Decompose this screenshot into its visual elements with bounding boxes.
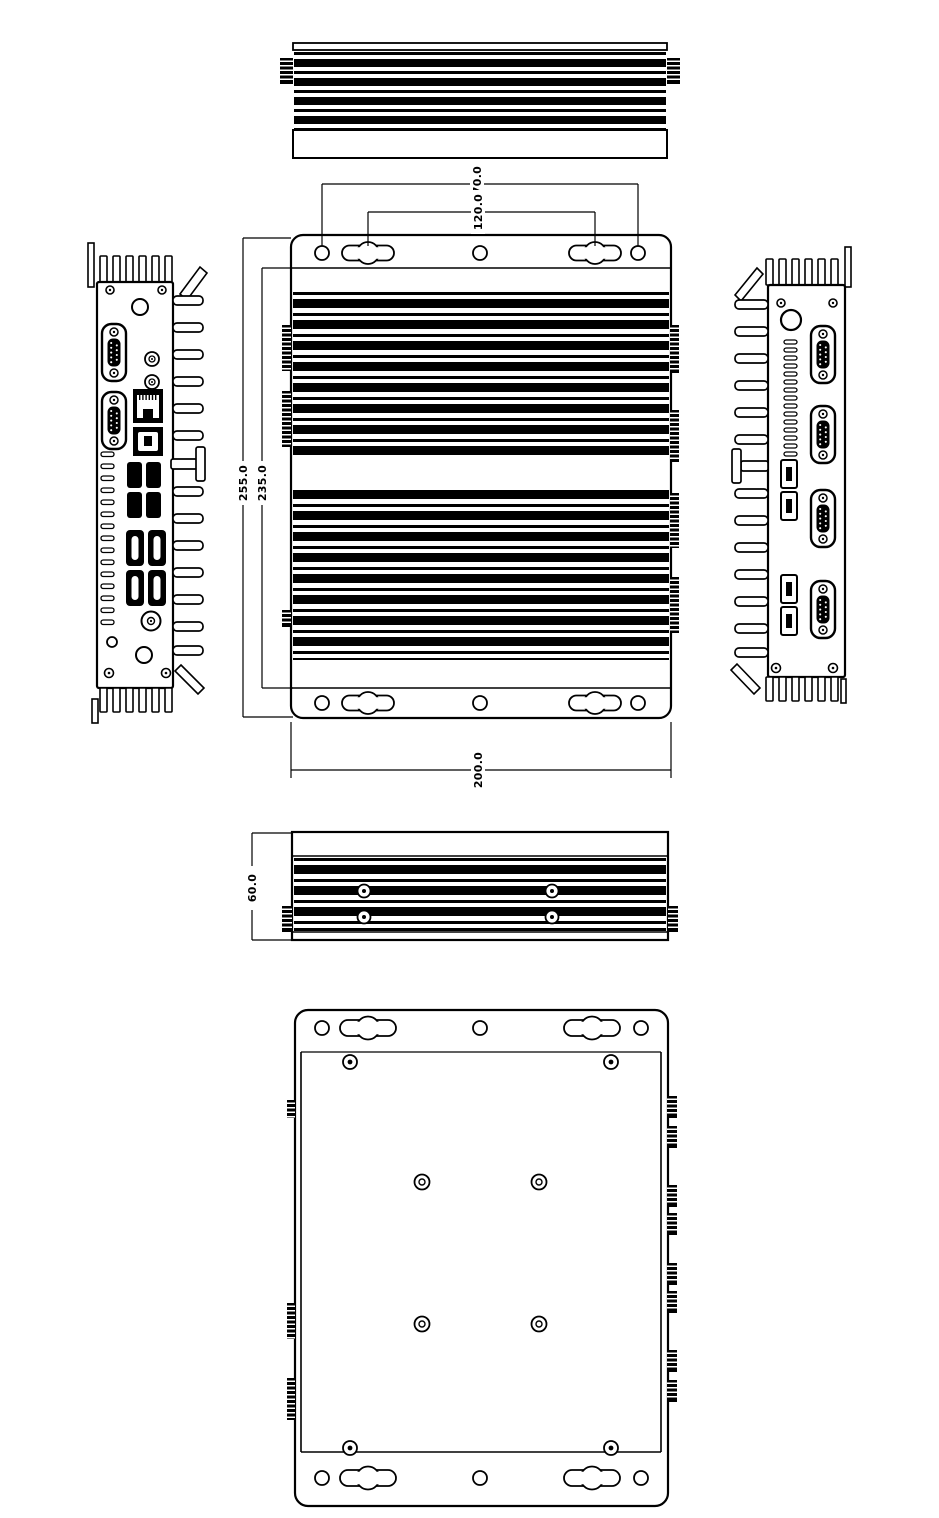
db9-pin [110, 415, 112, 417]
db9-pin [819, 604, 821, 606]
db9-pin [825, 606, 827, 608]
db9-pin [825, 520, 827, 522]
fin-tooth [818, 677, 825, 701]
heatsink-fin [294, 90, 666, 93]
mechanical-dimension-drawing: 170.0 120.0 255.0 235.0 200.0 60.0 [0, 0, 939, 1518]
center-dot [822, 629, 824, 631]
fin-tooth [766, 259, 773, 285]
heatsink-fin [294, 71, 666, 74]
fin-tooth [173, 404, 203, 413]
chassis-band [293, 130, 667, 158]
db9-pin [110, 420, 112, 422]
db9-pin-field [817, 421, 830, 449]
top-view [282, 235, 679, 718]
db9-pin-field [817, 596, 830, 624]
vent-slot [784, 380, 797, 384]
db9-pin [116, 359, 118, 361]
heatsink-fin [293, 574, 669, 583]
center-dot [113, 440, 115, 442]
top-cap [293, 43, 667, 50]
heatsink-fin [293, 418, 669, 421]
ethernet-latch [143, 409, 153, 418]
fin-tooth [173, 541, 203, 550]
fin-tooth [735, 597, 768, 606]
center-dot [113, 331, 115, 333]
vent-slot [784, 452, 797, 456]
db9-pin [819, 527, 821, 529]
heatsink-fin [293, 397, 669, 400]
heatsink-fin [293, 553, 669, 562]
mounting-hole [315, 696, 329, 710]
vent-slot [784, 364, 797, 368]
db9-pin [819, 424, 821, 426]
vent-slot [784, 412, 797, 416]
vent-slot [101, 584, 114, 589]
corner-fin [735, 268, 763, 301]
fin-tooth [171, 459, 197, 469]
vent-slot [101, 548, 114, 553]
heatsink-fin [293, 504, 669, 507]
ethernet-pin [145, 395, 146, 400]
center-dot [165, 672, 168, 675]
heatsink-fin [293, 446, 669, 455]
fin-tooth [100, 688, 107, 712]
fin-tooth [173, 377, 203, 386]
heatsink-fin [293, 567, 669, 570]
hdmi-slot [154, 576, 161, 600]
heatsink-fin [293, 404, 669, 413]
mounting-hole [473, 1021, 487, 1035]
db9-pin [819, 434, 821, 436]
dim-label-body-height: 235.0 [256, 465, 269, 501]
db9-pin [819, 613, 821, 615]
center-dot [113, 372, 115, 374]
db9-pin [825, 525, 827, 527]
mount-bracket-edge [841, 679, 846, 703]
heatsink-fin [293, 511, 669, 520]
center-dot [150, 620, 152, 622]
center-dot [109, 289, 111, 291]
rear-io-panel-view [731, 247, 851, 703]
fin-tooth [779, 259, 786, 285]
heatsink-fin [293, 299, 669, 308]
vent-slot [101, 464, 114, 469]
vent-slot [101, 476, 114, 481]
mount-bracket-edge [92, 699, 98, 723]
db9-pin [825, 346, 827, 348]
db9-pin [819, 508, 821, 510]
vent-slot [784, 340, 797, 344]
heatsink-fin [294, 109, 666, 112]
ethernet-pin [142, 395, 143, 400]
fin-tooth [735, 300, 768, 309]
vent-slot [784, 348, 797, 352]
fin-tooth [735, 327, 768, 336]
usb-port [146, 462, 161, 488]
heatsink-fin [293, 376, 669, 379]
fin-tooth [735, 489, 768, 498]
fin-tooth [735, 435, 768, 444]
vent-slot [101, 536, 114, 541]
reset-hole [107, 637, 117, 647]
vent-slot [784, 388, 797, 392]
center-dot [609, 1446, 614, 1451]
usb-port [127, 492, 142, 518]
hdmi-slot [132, 536, 139, 560]
db9-pin [819, 363, 821, 365]
circle-hole [419, 1321, 425, 1327]
fin-tooth [792, 259, 799, 285]
fin-tooth [792, 677, 799, 701]
heatsink-fin [294, 865, 666, 874]
heatsink-fin [293, 313, 669, 316]
usb-tongue [786, 582, 792, 596]
circle-hole [419, 1179, 425, 1185]
db9-pin [825, 361, 827, 363]
hdmi-slot [132, 576, 139, 600]
db9-pin [110, 429, 112, 431]
mount-bracket-edge [88, 243, 94, 287]
dim-label-overall-width: 200.0 [472, 752, 485, 788]
db9-pin [110, 361, 112, 363]
dim-label-mount-slot-span: 120.0 [472, 194, 485, 230]
center-dot [780, 302, 782, 304]
center-dot [822, 588, 824, 590]
db9-pin [819, 599, 821, 601]
vent-slot [101, 572, 114, 577]
db9-pin [110, 424, 112, 426]
fin-tooth [735, 648, 768, 657]
dim-label-chassis-thickness: 60.0 [246, 874, 259, 902]
bottom-view [287, 1010, 677, 1506]
db9-pin [819, 522, 821, 524]
mounting-hole [634, 1021, 648, 1035]
heatsink-fin [294, 858, 666, 861]
fin-tooth [735, 381, 768, 390]
heatsink-fin [293, 588, 669, 591]
drawing-page: 170.0 120.0 255.0 235.0 200.0 60.0 [0, 0, 939, 1518]
fin-tooth [173, 350, 203, 359]
heatsink-fin [293, 425, 669, 434]
heatsink-fin [294, 116, 666, 124]
vent-slot [101, 512, 114, 517]
heatsink-fin [294, 928, 666, 931]
fin-tooth [735, 354, 768, 363]
fin-tooth [735, 624, 768, 633]
antenna-hole [781, 310, 801, 330]
center-dot [108, 672, 111, 675]
bottom-side-view [282, 832, 678, 940]
vent-slot [784, 420, 797, 424]
center-dot [822, 413, 824, 415]
vent-slot [784, 404, 797, 408]
heatsink-fin [293, 362, 669, 371]
db9-pin [110, 356, 112, 358]
heatsink-fin [293, 616, 669, 625]
usb-port [146, 492, 161, 518]
db9-pin [825, 515, 827, 517]
heatsink-fin [293, 532, 669, 541]
center-dot [832, 302, 834, 304]
heatsink-fin [293, 383, 669, 392]
fin-tooth [779, 677, 786, 701]
vent-slot [784, 436, 797, 440]
db9-pin [819, 513, 821, 515]
fin-tooth [152, 256, 159, 282]
vent-slot [101, 488, 114, 493]
heatsink-fin [293, 292, 669, 295]
center-dot [151, 358, 153, 360]
center-dot [113, 399, 115, 401]
fin-tooth [831, 259, 838, 285]
heatsink-fin [294, 900, 666, 903]
fin-tooth [173, 296, 203, 305]
heatsink-fin [294, 886, 666, 895]
db9-pin [825, 441, 827, 443]
mounting-hole [631, 696, 645, 710]
db9-pin [825, 510, 827, 512]
center-dot [822, 374, 824, 376]
corner-fin [175, 665, 204, 694]
fin-tooth [113, 256, 120, 282]
db9-pin [825, 616, 827, 618]
fin-tooth [196, 447, 205, 481]
antenna-hole [132, 299, 148, 315]
heatsink-fin [294, 921, 666, 924]
heatsink-fin [293, 658, 669, 660]
mounting-hole [634, 1471, 648, 1485]
vent-slot [784, 444, 797, 448]
hdmi-slot [154, 536, 161, 560]
db9-pin [116, 427, 118, 429]
db9-pin [819, 618, 821, 620]
mounting-hole [473, 1471, 487, 1485]
ethernet-pin [155, 395, 156, 400]
power-button [136, 647, 152, 663]
ethernet-latch [144, 436, 152, 446]
fin-tooth [741, 461, 768, 471]
corner-fin [180, 267, 207, 300]
usb-tongue [786, 499, 792, 513]
heatsink-fin [293, 334, 669, 337]
fin-tooth [735, 543, 768, 552]
db9-pin [825, 356, 827, 358]
db9-pin [110, 410, 112, 412]
db9-pin [110, 342, 112, 344]
fin-tooth [735, 516, 768, 525]
db9-pin [819, 354, 821, 356]
center-dot [151, 381, 153, 383]
fin-tooth [126, 688, 133, 712]
fin-tooth [113, 688, 120, 712]
fin-tooth [805, 677, 812, 701]
center-dot [348, 1446, 353, 1451]
vent-slot [784, 372, 797, 376]
vent-slot [101, 596, 114, 601]
vent-slot [101, 452, 114, 457]
mounting-hole [473, 696, 487, 710]
ethernet-pin [149, 395, 150, 400]
db9-pin [110, 347, 112, 349]
db9-pin [825, 611, 827, 613]
heatsink-fin [293, 355, 669, 358]
center-dot [609, 1060, 614, 1065]
db9-pin [110, 352, 112, 354]
ethernet-pin [139, 395, 140, 400]
center-dot [822, 497, 824, 499]
db9-pin [819, 443, 821, 445]
heatsink-fin [294, 907, 666, 916]
dim-label-overall-height: 255.0 [237, 465, 250, 501]
fin-tooth [766, 677, 773, 701]
heatsink-fin [293, 490, 669, 499]
fin-tooth [152, 688, 159, 712]
fin-tooth [735, 570, 768, 579]
db9-pin [819, 344, 821, 346]
fin-tooth [735, 408, 768, 417]
heatsink-fin [293, 439, 669, 442]
mounting-hole [473, 246, 487, 260]
db9-pin [825, 431, 827, 433]
mounting-hole [315, 246, 329, 260]
center-dot [550, 915, 554, 919]
db9-pin [825, 351, 827, 353]
db9-pin [819, 518, 821, 520]
fin-tooth [173, 431, 203, 440]
fin-tooth [173, 323, 203, 332]
heatsink-fin [294, 78, 666, 86]
circle-hole [536, 1179, 542, 1185]
heatsink-fin [293, 546, 669, 549]
db9-pin [116, 417, 118, 419]
usb-port [127, 462, 142, 488]
heatsink-fin [294, 97, 666, 105]
db9-pin [116, 349, 118, 351]
fin-tooth [165, 688, 172, 712]
db9-pin [819, 358, 821, 360]
ethernet-pin [152, 395, 153, 400]
db9-pin [825, 426, 827, 428]
db9-pin [116, 412, 118, 414]
center-dot [832, 667, 835, 670]
center-dot [822, 454, 824, 456]
vent-slot [784, 428, 797, 432]
fin-tooth [173, 646, 203, 655]
fin-tooth [805, 259, 812, 285]
vent-slot [101, 560, 114, 565]
usb-tongue [786, 467, 792, 481]
db9-pin [116, 344, 118, 346]
fin-tooth [173, 487, 203, 496]
db9-pin [116, 354, 118, 356]
fin-tooth [139, 688, 146, 712]
fin-tooth [173, 595, 203, 604]
top-side-view [280, 43, 680, 158]
fin-tooth [165, 256, 172, 282]
vent-slot [101, 620, 114, 625]
db9-pin-field [108, 407, 121, 435]
mounting-hole [631, 246, 645, 260]
base-plate-outline [295, 1010, 668, 1506]
corner-fin [731, 664, 760, 694]
center-dot [775, 667, 778, 670]
front-io-panel-view [88, 243, 207, 723]
db9-pin [116, 422, 118, 424]
heatsink-fin [293, 595, 669, 604]
heatsink-fin [294, 879, 666, 882]
db9-pin [825, 601, 827, 603]
heatsink-fin [294, 52, 666, 55]
mounting-hole [315, 1021, 329, 1035]
db9-pin [819, 349, 821, 351]
vent-slot [101, 500, 114, 505]
heatsink-fin [293, 609, 669, 612]
db9-pin-field [108, 339, 121, 367]
center-dot [362, 889, 366, 893]
center-dot [822, 333, 824, 335]
mounting-hole [315, 1471, 329, 1485]
vent-slot [101, 524, 114, 529]
fin-tooth [818, 259, 825, 285]
fin-tooth [173, 568, 203, 577]
vent-slot [784, 396, 797, 400]
fin-tooth [831, 677, 838, 701]
center-dot [822, 538, 824, 540]
fin-tooth [139, 256, 146, 282]
fin-tooth [732, 449, 741, 483]
heatsink-fin [293, 637, 669, 646]
db9-pin [819, 429, 821, 431]
fin-tooth [126, 256, 133, 282]
usb-tongue [786, 614, 792, 628]
db9-pin-field [817, 505, 830, 533]
fin-tooth [100, 256, 107, 282]
vent-slot [784, 356, 797, 360]
db9-pin [825, 436, 827, 438]
center-dot [550, 889, 554, 893]
center-dot [161, 289, 163, 291]
circle-hole [536, 1321, 542, 1327]
heatsink-fin [293, 630, 669, 633]
db9-pin [819, 609, 821, 611]
center-dot [362, 915, 366, 919]
mount-bracket-edge [845, 247, 851, 287]
fin-tooth [173, 622, 203, 631]
db9-pin-field [817, 341, 830, 369]
heatsink-fin [293, 341, 669, 350]
heatsink-fin [293, 320, 669, 329]
heatsink-fin [294, 59, 666, 67]
center-dot [348, 1060, 353, 1065]
heatsink-fin [293, 525, 669, 528]
heatsink-fin [293, 651, 669, 654]
db9-pin [819, 438, 821, 440]
vent-slot [101, 608, 114, 613]
fin-tooth [173, 514, 203, 523]
